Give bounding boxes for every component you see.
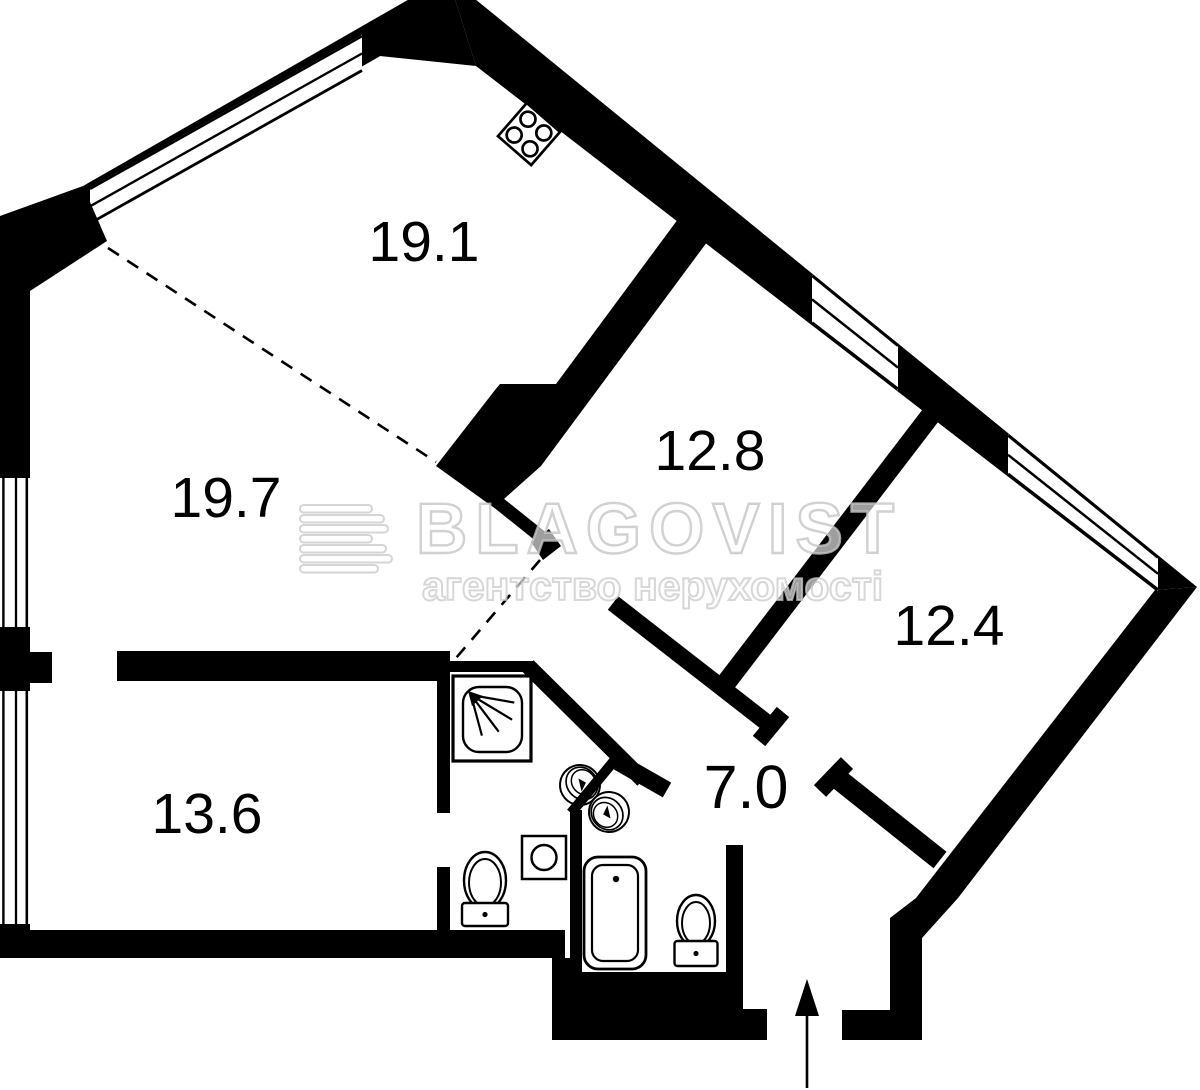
svg-text:19.7: 19.7 — [171, 466, 282, 530]
svg-text:агентство нерухомості: агентство нерухомості — [422, 563, 883, 609]
svg-text:12.8: 12.8 — [655, 419, 766, 483]
svg-text:BLAGOVIST: BLAGOVIST — [416, 490, 902, 569]
svg-text:13.6: 13.6 — [152, 782, 263, 846]
svg-text:7.0: 7.0 — [704, 753, 789, 821]
svg-text:12.4: 12.4 — [894, 594, 1005, 658]
svg-text:19.1: 19.1 — [369, 210, 480, 274]
